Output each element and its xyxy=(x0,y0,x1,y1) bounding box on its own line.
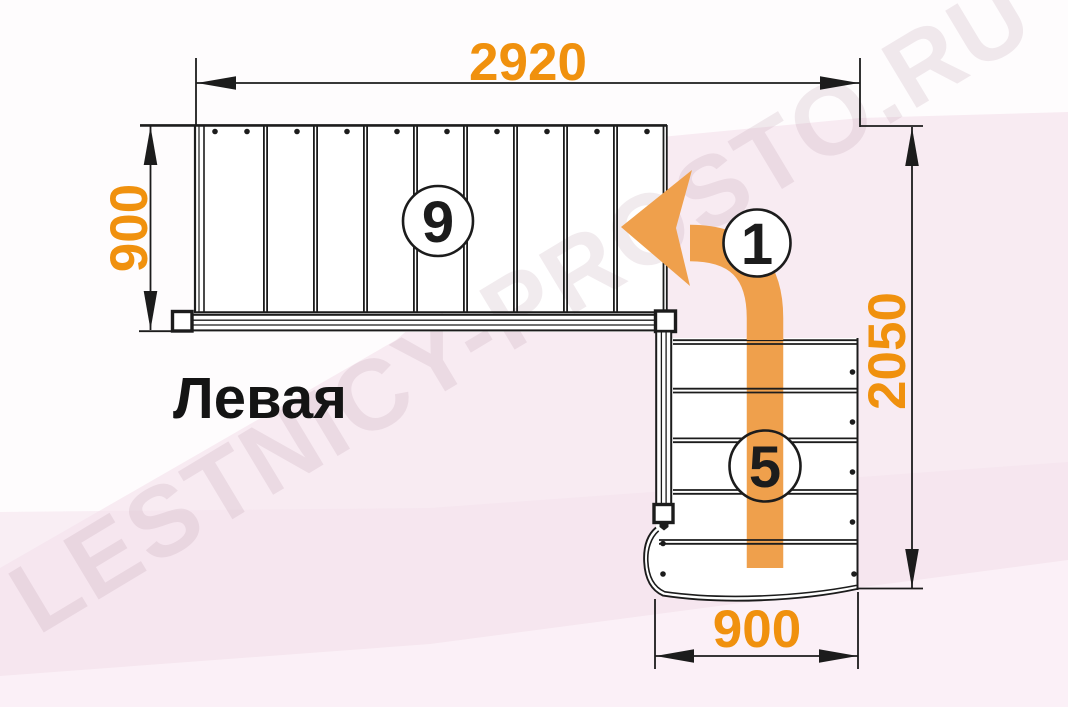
upper-railing xyxy=(173,311,676,332)
upper-railing-band xyxy=(192,315,656,331)
dimension-top-value: 2920 xyxy=(469,33,587,92)
dimension-right-value: 2050 xyxy=(858,292,917,410)
diagram-canvas: LESTNICY-PROSTO.RU xyxy=(0,0,1068,707)
railing-post-left xyxy=(173,312,193,332)
marker-start-step-value: 1 xyxy=(741,212,773,277)
dimension-bottom-value: 900 xyxy=(713,600,801,659)
railing-post-bottom xyxy=(654,505,673,523)
marker-upper-steps-value: 9 xyxy=(422,190,454,255)
railing-post-corner xyxy=(656,311,676,332)
lower-railing-band xyxy=(656,332,671,506)
marker-lower-steps-value: 5 xyxy=(749,435,781,500)
marker-upper-steps: 9 xyxy=(403,186,473,256)
orientation-label: Левая xyxy=(173,366,347,431)
marker-lower-steps: 5 xyxy=(730,430,801,502)
dimension-left-value: 900 xyxy=(100,184,159,272)
stair-plan-diagram: LESTNICY-PROSTO.RU xyxy=(0,0,1068,707)
lower-railing xyxy=(654,332,673,531)
marker-start-step: 1 xyxy=(724,210,791,278)
